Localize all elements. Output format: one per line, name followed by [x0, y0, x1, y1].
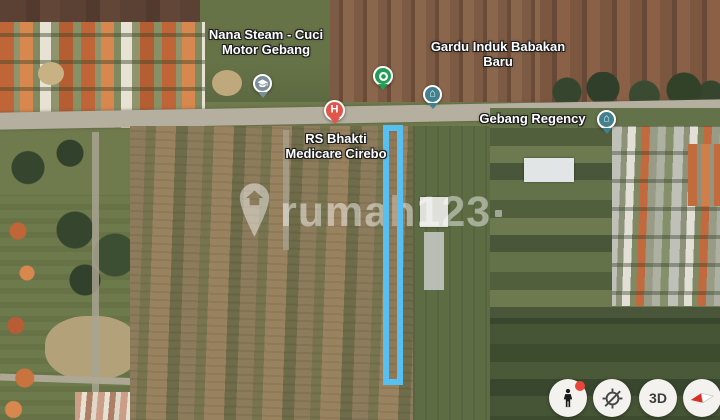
my-location-button[interactable] [593, 379, 631, 417]
farmland-texture [130, 126, 415, 420]
poi-label-gardu-induk[interactable]: Gardu Induk Babakan Baru [430, 39, 566, 70]
hospital-marker[interactable]: H [324, 100, 345, 121]
highlighted-plot-outline [383, 125, 403, 385]
poi-label-nana-steam[interactable]: Nana Steam - Cuci Motor Gebang [190, 27, 342, 58]
green-place-marker[interactable] [373, 66, 393, 86]
satellite-map[interactable]: rumah123 ⌂ H ⌂ Nana Steam - Cuci Motor G… [0, 0, 720, 420]
pegman-notification-dot [575, 381, 585, 391]
building-roof [420, 197, 448, 227]
substation-marker[interactable]: ⌂ [423, 85, 442, 104]
housing-complex-icon: ⌂ [429, 89, 436, 100]
village-area [0, 210, 45, 420]
housing-complex-marker[interactable]: ⌂ [597, 110, 616, 129]
3d-button-label: 3D [649, 390, 667, 406]
location-disabled-icon [601, 387, 624, 410]
village-area [688, 144, 720, 206]
pegman-icon [558, 387, 578, 409]
warehouse-roof [524, 158, 574, 182]
dirt-patch [38, 62, 64, 85]
dirt-patch [212, 70, 242, 96]
poi-label-gebang-regency[interactable]: Gebang Regency [470, 111, 595, 126]
building-roof [424, 232, 444, 290]
poi-label-rs-bhakti[interactable]: RS Bhakti Medicare Cirebo [277, 131, 395, 162]
hospital-h-icon: H [331, 105, 339, 116]
street-view-pegman-button[interactable] [549, 379, 587, 417]
compass-needle-icon [689, 385, 715, 411]
3d-toggle-button[interactable]: 3D [639, 379, 677, 417]
graduation-cap-icon [257, 78, 268, 89]
compass-button[interactable] [683, 379, 720, 417]
green-dot-icon [379, 72, 388, 81]
business-marker[interactable] [253, 74, 272, 93]
housing-complex-icon: ⌂ [603, 114, 610, 125]
